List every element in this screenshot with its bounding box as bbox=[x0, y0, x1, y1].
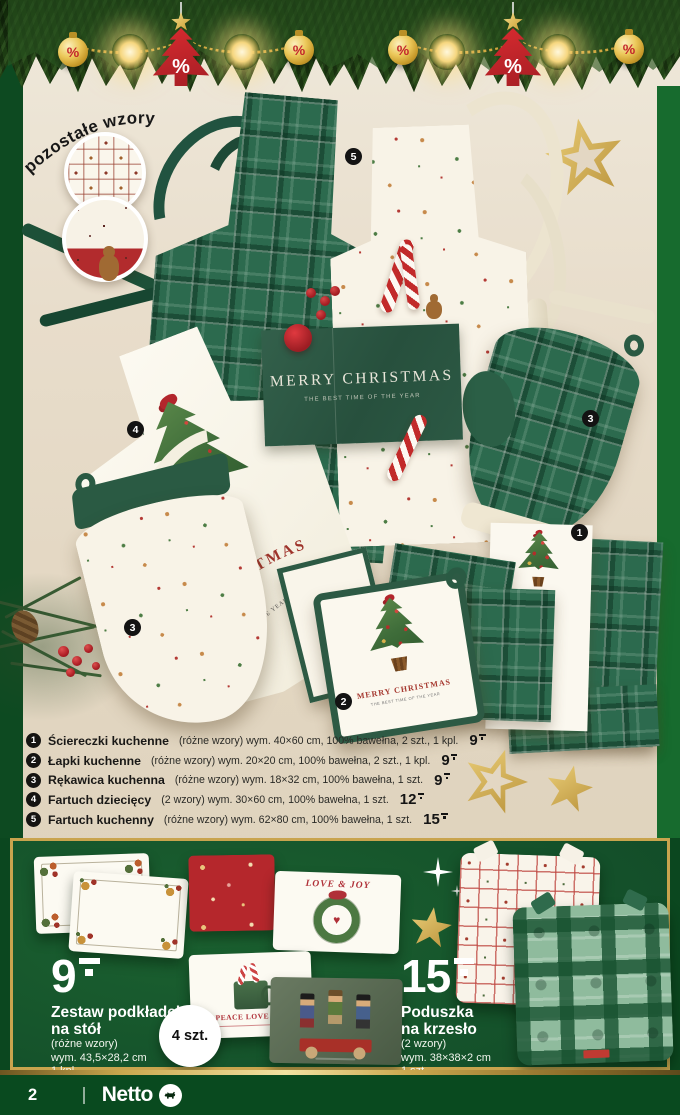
page-number: 2 bbox=[28, 1086, 37, 1105]
pocket-text: MERRY CHRISTMAS bbox=[270, 366, 454, 390]
percent-icon: % bbox=[67, 44, 79, 60]
product-name: Ściereczki kuchenne bbox=[48, 734, 169, 748]
red-berry-icon bbox=[316, 310, 326, 320]
glowing-light bbox=[112, 34, 148, 70]
product-price: 12 bbox=[400, 791, 424, 808]
product-price: 9 bbox=[441, 752, 457, 769]
product-name: Fartuch kuchenny bbox=[48, 813, 154, 827]
apron-tie bbox=[548, 289, 657, 325]
tree-shape: % bbox=[149, 28, 213, 86]
pot-holder-tree: MERRY CHRISTMAS THE BEST TIME OF THE YEA… bbox=[312, 571, 486, 745]
bell-corner-icon bbox=[159, 879, 186, 903]
product-tag-4: 4 bbox=[127, 421, 144, 438]
krona-dash-icon bbox=[479, 734, 486, 750]
offer-title-line1: Poduszka bbox=[401, 1004, 491, 1021]
product-price: 9 bbox=[469, 732, 485, 749]
krona-dash-icon bbox=[441, 813, 448, 829]
krona-dash-icon bbox=[418, 793, 425, 809]
offer-price: 15 bbox=[401, 953, 491, 999]
footer-bar: 2 Netto bbox=[0, 1075, 680, 1115]
red-berry-icon bbox=[320, 296, 330, 306]
product-details: (różne wzory) wym. 18×32 cm, 100% bawełn… bbox=[175, 774, 423, 786]
red-berry-icon bbox=[92, 662, 100, 670]
price-value: 9 bbox=[51, 953, 76, 999]
offer-title-line2: na krzesło bbox=[401, 1021, 491, 1038]
product-details: (różne wzory) wym. 62×80 cm, 100% bawełn… bbox=[164, 814, 412, 826]
offer-price: 9 bbox=[51, 953, 185, 999]
krona-dash-icon bbox=[79, 958, 99, 999]
nutcracker-icon bbox=[328, 990, 343, 1024]
brand-tag bbox=[583, 1049, 609, 1058]
product-number-badge: 4 bbox=[26, 792, 41, 807]
product-name: Rękawica kuchenna bbox=[48, 773, 165, 787]
red-tree-ornament: % bbox=[481, 2, 545, 92]
script-signature bbox=[316, 1058, 356, 1061]
tree-basket bbox=[390, 656, 410, 672]
gold-bauble-ornament: % bbox=[58, 37, 88, 67]
heart-icon: ♥ bbox=[333, 913, 341, 927]
other-patterns-badge: pozostałe wzory bbox=[22, 86, 232, 306]
product-details: (2 wzory) wym. 30×60 cm, 100% bawełna, 1… bbox=[161, 794, 389, 806]
bell-corner-icon bbox=[70, 927, 97, 951]
price-value: 9 bbox=[469, 732, 477, 749]
product-number-badge: 3 bbox=[26, 773, 41, 788]
glowing-light bbox=[224, 34, 260, 70]
product-name: Łapki kuchenne bbox=[48, 754, 141, 768]
red-berry-icon bbox=[330, 286, 340, 296]
nutcracker-icon bbox=[300, 993, 315, 1027]
percent-icon: % bbox=[293, 42, 305, 58]
offer-cushion: 15 Poduszka na krzesło (2 wzory) wym. 38… bbox=[401, 953, 491, 1078]
gingerbread-man-icon bbox=[96, 246, 122, 282]
count-badge: 4 szt. bbox=[159, 1005, 221, 1067]
product-tag-2: 2 bbox=[335, 693, 352, 710]
product-number-badge: 5 bbox=[26, 812, 41, 827]
product-row: 2 Łapki kuchenne (różne wzory) wym. 20×2… bbox=[26, 751, 626, 771]
product-details: (różne wzory) wym. 40×60 cm, 100% bawełn… bbox=[179, 735, 458, 747]
tree-foliage bbox=[515, 531, 562, 577]
price-value: 9 bbox=[441, 752, 449, 769]
placemat-bells bbox=[68, 871, 188, 959]
christmas-tree-print bbox=[359, 593, 433, 686]
footer-divider bbox=[83, 1087, 85, 1104]
percent-icon: % bbox=[504, 57, 522, 77]
wagon-icon bbox=[299, 1038, 371, 1052]
tree-foliage bbox=[359, 593, 430, 662]
red-berry-icon bbox=[306, 288, 316, 298]
sparkle-icon bbox=[423, 857, 453, 887]
placemat-red-pattern bbox=[188, 854, 275, 931]
christmas-tree-print bbox=[515, 531, 563, 594]
product-name: Fartuch dziecięcy bbox=[48, 793, 151, 807]
right-edge-strip bbox=[657, 86, 680, 838]
price-value: 12 bbox=[400, 791, 417, 808]
gingerbread-man-icon bbox=[424, 294, 444, 320]
netto-dog-icon bbox=[159, 1084, 182, 1107]
placemat-love-joy: LOVE & JOY ♥ bbox=[273, 871, 402, 954]
bell-corner-icon bbox=[74, 873, 101, 897]
cushion-tie bbox=[558, 842, 584, 866]
product-number-badge: 1 bbox=[26, 733, 41, 748]
red-berry-icon bbox=[58, 646, 69, 657]
pattern-swatch-gingerbread bbox=[62, 196, 148, 282]
product-price: 15 bbox=[423, 811, 447, 828]
red-tree-ornament: % bbox=[149, 2, 213, 92]
holly-corner-icon bbox=[38, 909, 65, 932]
placemat-nutcrackers bbox=[269, 977, 402, 1065]
red-berry-icon bbox=[72, 656, 82, 666]
price-value: 9 bbox=[434, 772, 442, 789]
tree-shape: % bbox=[481, 28, 545, 86]
glowing-light bbox=[540, 34, 576, 70]
flyer-page: % % % % % % pozostałe wzory bbox=[0, 0, 680, 1115]
percent-icon: % bbox=[172, 57, 190, 77]
berry-decoration bbox=[276, 284, 350, 360]
product-tag-5: 5 bbox=[345, 148, 362, 165]
product-row: 3 Rękawica kuchenna (różne wzory) wym. 1… bbox=[26, 770, 626, 790]
tree-basket bbox=[531, 576, 545, 586]
product-row: 5 Fartuch kuchenny (różne wzory) wym. 62… bbox=[26, 810, 626, 830]
product-details: (różne wzory) wym. 20×20 cm, 100% bawełn… bbox=[151, 755, 430, 767]
holly-corner-icon bbox=[36, 858, 63, 881]
cushion-tie bbox=[473, 839, 499, 862]
red-berry-icon bbox=[84, 644, 93, 653]
red-knob-icon bbox=[284, 324, 312, 352]
offer-dimensions: wym. 38×38×2 cm bbox=[401, 1052, 491, 1065]
product-tag-3-right: 3 bbox=[582, 410, 599, 427]
hanging-loop bbox=[624, 334, 645, 357]
netto-logo-wordmark: Netto bbox=[102, 1083, 153, 1107]
seat-cushion-green-plaid bbox=[512, 902, 673, 1065]
krona-dash-icon bbox=[451, 754, 458, 770]
product-price: 9 bbox=[434, 772, 450, 789]
red-berry-icon bbox=[66, 668, 75, 677]
krona-dash-icon bbox=[454, 958, 474, 999]
price-value: 15 bbox=[401, 953, 450, 999]
gold-bauble-ornament: % bbox=[614, 34, 644, 64]
price-value: 15 bbox=[423, 811, 440, 828]
quilt-tufts bbox=[512, 902, 673, 1065]
glowing-light bbox=[429, 34, 465, 70]
nutcracker-icon bbox=[356, 994, 371, 1028]
promo-panel: LOVE & JOY ♥ PEACE LOVE JOY bbox=[10, 838, 670, 1070]
product-row: 4 Fartuch dziecięcy (2 wzory) wym. 30×60… bbox=[26, 790, 626, 810]
product-list: 1 Ściereczki kuchenne (różne wzory) wym.… bbox=[26, 731, 626, 829]
gold-bauble-ornament: % bbox=[284, 35, 314, 65]
product-tag-1: 1 bbox=[571, 524, 588, 541]
offer-title: Poduszka na krzesło bbox=[401, 1004, 491, 1038]
percent-icon: % bbox=[623, 41, 635, 57]
gold-bauble-ornament: % bbox=[388, 35, 418, 65]
offer-variants: (2 wzory) bbox=[401, 1038, 491, 1051]
product-number-badge: 2 bbox=[26, 753, 41, 768]
krona-dash-icon bbox=[444, 773, 451, 789]
product-tag-3-left: 3 bbox=[124, 619, 141, 636]
gold-star-ornament bbox=[407, 904, 454, 951]
offer-placemats: 9 Zestaw podkładek na stół (różne wzory)… bbox=[51, 953, 185, 1078]
product-row: 1 Ściereczki kuchenne (różne wzory) wym.… bbox=[26, 731, 626, 751]
percent-icon: % bbox=[397, 42, 409, 58]
pocket-subtext: THE BEST TIME OF THE YEAR bbox=[304, 392, 421, 402]
